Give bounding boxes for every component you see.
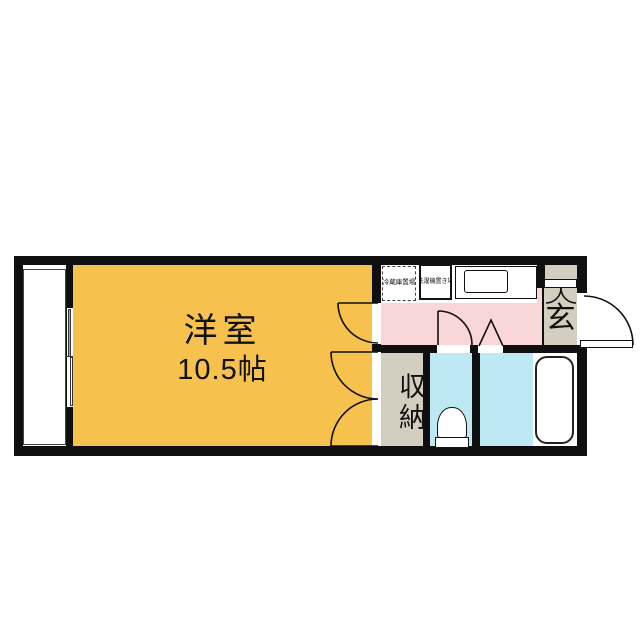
- door-arc-cabinet-right: [561, 288, 576, 303]
- closet-label: 収納: [381, 368, 423, 438]
- folding-door-bath: [479, 320, 503, 346]
- door-arc-toilet: [438, 311, 472, 345]
- entrance-label: 玄: [544, 304, 577, 334]
- living-room-size: 10.5帖: [73, 356, 372, 385]
- door-arc-cabinet-left: [546, 288, 561, 303]
- living-room-label: 洋室: [73, 314, 372, 348]
- floor-plan-image: 冷蔵庫置場 洗濯機置き場 洋室 10.5帖: [0, 0, 640, 640]
- door-arc-closet-bottom: [331, 399, 378, 446]
- door-arc-entrance: [584, 296, 633, 345]
